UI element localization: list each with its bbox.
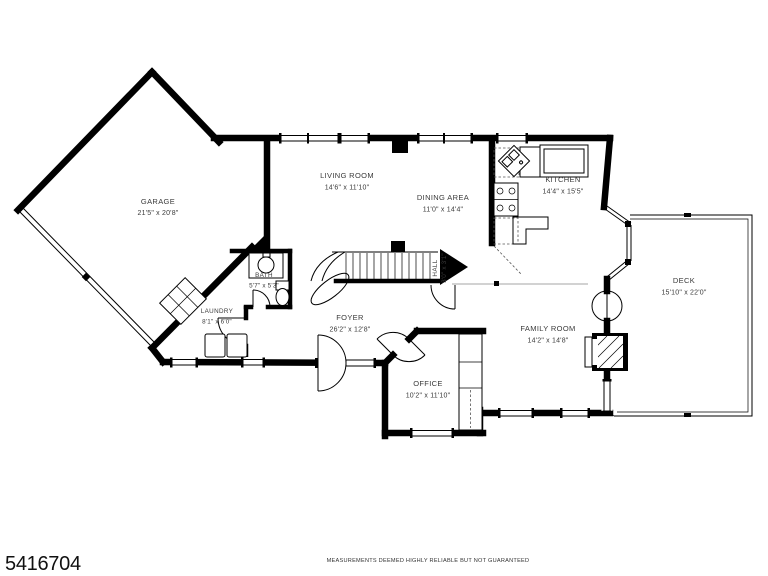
room-label-office: OFFICE bbox=[413, 379, 443, 388]
room-dims-hall: 3'0" x 3'1" bbox=[441, 253, 448, 283]
hall-door bbox=[431, 285, 455, 309]
chimney bbox=[392, 141, 408, 153]
garage-door bbox=[19, 208, 156, 348]
stove-icon bbox=[494, 183, 518, 216]
utility-cabinet bbox=[160, 278, 207, 325]
closet bbox=[459, 334, 482, 430]
room-label-hall: HALL bbox=[432, 259, 439, 276]
floor-plan: GARAGE 21'5" x 20'8" LIVING ROOM 14'6" x… bbox=[0, 0, 768, 576]
office-door bbox=[377, 332, 425, 361]
window bbox=[279, 133, 340, 144]
ceiling-break-line bbox=[452, 281, 588, 286]
room-dims-laundry: 8'1" x 6'0" bbox=[202, 319, 232, 326]
washer-icon bbox=[205, 334, 225, 357]
footer: 5416704 MEASUREMENTS DEEMED HIGHLY RELIA… bbox=[5, 553, 529, 575]
room-label-living-room: LIVING ROOM bbox=[320, 171, 374, 180]
room-dims-dining-area: 11'0" x 14'4" bbox=[423, 207, 464, 214]
room-dims-office: 10'2" x 11'10" bbox=[406, 393, 451, 400]
window bbox=[498, 408, 534, 419]
room-dims-bath: 5'7" x 5'3" bbox=[249, 283, 279, 290]
room-dims-family-room: 14'2" x 14'8" bbox=[528, 338, 569, 345]
room-label-kitchen: KITCHEN bbox=[545, 175, 580, 184]
stair-newel bbox=[391, 241, 405, 252]
laundry-fixtures bbox=[160, 278, 247, 357]
refrigerator-icon bbox=[540, 145, 588, 177]
kitchen-fixtures bbox=[494, 145, 588, 274]
room-dims-garage: 21'5" x 20'8" bbox=[138, 210, 179, 217]
room-dims-kitchen: 14'4" x 15'5" bbox=[543, 189, 584, 196]
exterior-walls bbox=[163, 138, 610, 436]
room-dims-living-room: 14'6" x 11'10" bbox=[325, 185, 370, 192]
window bbox=[417, 133, 473, 144]
bath-fixtures bbox=[249, 253, 289, 306]
window bbox=[339, 133, 370, 144]
room-label-garage: GARAGE bbox=[141, 197, 175, 206]
room-label-family-room: FAMILY ROOM bbox=[520, 324, 575, 333]
bay-windows bbox=[601, 204, 631, 282]
room-label-laundry: LAUNDRY bbox=[201, 308, 234, 315]
dryer-icon bbox=[227, 334, 247, 357]
window bbox=[496, 133, 528, 144]
window bbox=[241, 357, 265, 368]
floor-plan-page: GARAGE 21'5" x 20'8" LIVING ROOM 14'6" x… bbox=[0, 0, 768, 576]
window bbox=[560, 408, 590, 419]
window bbox=[602, 379, 613, 413]
front-door bbox=[315, 335, 376, 391]
room-label-deck: DECK bbox=[673, 276, 695, 285]
fireplace-icon bbox=[585, 333, 628, 371]
room-label-bath: BATH bbox=[255, 272, 273, 279]
listing-id: 5416704 bbox=[5, 553, 81, 575]
bath-door bbox=[253, 290, 270, 307]
deck-french-doors bbox=[592, 291, 622, 321]
disclaimer-text: MEASUREMENTS DEEMED HIGHLY RELIABLE BUT … bbox=[327, 558, 530, 564]
room-dims-foyer: 26'2" x 12'8" bbox=[330, 327, 371, 334]
room-label-foyer: FOYER bbox=[336, 313, 364, 322]
room-label-dining-area: DINING AREA bbox=[417, 193, 469, 202]
room-dims-deck: 15'10" x 22'0" bbox=[661, 290, 706, 297]
window bbox=[410, 428, 454, 439]
window bbox=[170, 357, 198, 368]
